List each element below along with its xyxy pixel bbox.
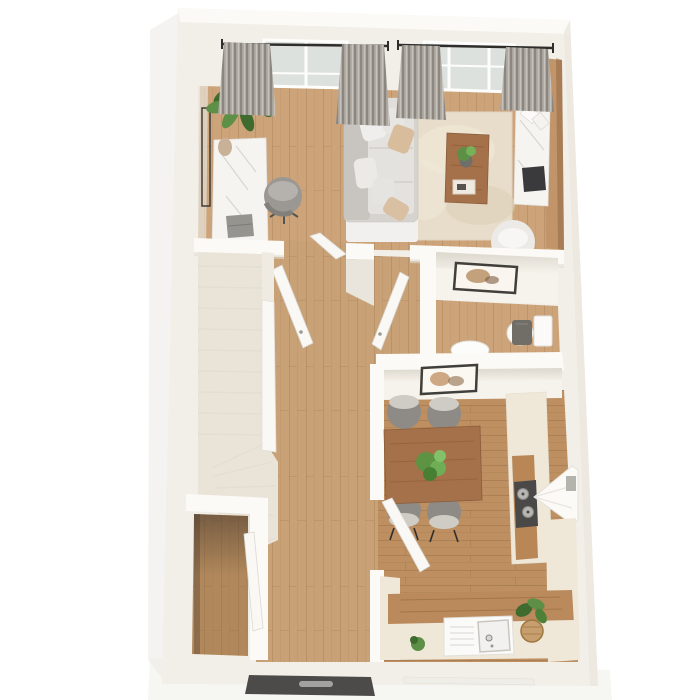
coffee-table-plant	[466, 146, 476, 156]
wc-wall-art	[454, 263, 517, 293]
curtain-panel	[218, 42, 276, 116]
wc	[420, 252, 560, 368]
tray-item	[457, 184, 466, 190]
marble-desk	[212, 138, 268, 250]
curtain-panel	[396, 45, 446, 120]
divider-wall-stub	[346, 243, 374, 260]
kitchen-left-wall-upper	[370, 364, 384, 500]
closet-side-shadow	[194, 514, 200, 654]
armchair-cushion	[498, 228, 528, 248]
media-console	[514, 104, 550, 206]
window-left-rail	[264, 73, 347, 74]
cooktop	[514, 480, 538, 528]
stair-railing-wall	[262, 300, 276, 452]
desk-vase	[218, 138, 232, 156]
door-handle	[299, 330, 303, 334]
toilet-cistern	[534, 316, 552, 346]
dining-table	[384, 426, 482, 504]
hood-vent	[566, 476, 576, 491]
floor-plan-rendering	[0, 0, 700, 700]
coffee-table	[445, 133, 489, 204]
picture-art	[430, 372, 450, 386]
curtain-panel	[500, 47, 554, 112]
faucet	[486, 635, 492, 641]
kitchen-wall-art	[421, 365, 477, 394]
closet-top-wall	[186, 494, 252, 514]
chair-cushion	[268, 181, 298, 201]
floor-plan-stage	[0, 0, 700, 700]
living-room	[198, 39, 564, 264]
wc-left-wall	[420, 256, 436, 368]
tv	[522, 166, 546, 192]
drain	[491, 645, 494, 648]
closet-shadow	[194, 514, 248, 576]
kitchen-dining	[370, 352, 580, 662]
curtain-panel	[336, 44, 390, 126]
picture-art	[448, 376, 464, 386]
picture-art	[485, 276, 499, 284]
kitchen-sink	[444, 616, 514, 656]
toilet	[507, 316, 552, 346]
front-door-handle	[299, 681, 333, 687]
under-stair-closet	[186, 494, 268, 660]
stair-wall-face	[262, 252, 274, 302]
door-handle	[378, 332, 382, 336]
dining-chair-1	[387, 395, 421, 429]
dining-chair-2	[427, 397, 461, 431]
